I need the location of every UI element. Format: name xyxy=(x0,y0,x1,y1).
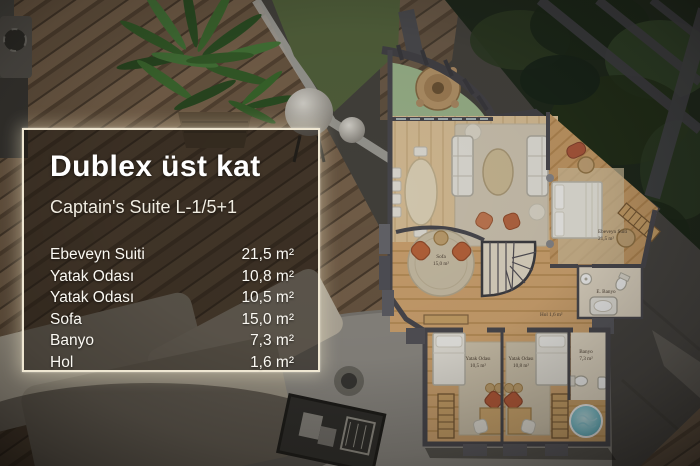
panel-title: Dublex üst kat xyxy=(50,150,294,184)
room-area: 21,5 m² xyxy=(241,244,294,266)
room-label: Yatak Odası xyxy=(50,266,134,288)
room-area: 1,6 m² xyxy=(250,352,294,374)
room-area: 10,8 m² xyxy=(241,266,294,288)
room-row: Yatak Odası 10,8 m² xyxy=(50,266,294,288)
room-area: 7,3 m² xyxy=(250,330,294,352)
real-estate-visual: Ebeveyn Suiti 21,5 m² Sofa 15,0 m² Hol 1… xyxy=(0,0,700,466)
room-area: 10,5 m² xyxy=(241,287,294,309)
room-row: Yatak Odası 10,5 m² xyxy=(50,287,294,309)
room-label: Hol xyxy=(50,352,73,374)
panel-subtitle: Captain's Suite L-1/5+1 xyxy=(50,197,294,218)
room-label: Yatak Odası xyxy=(50,287,134,309)
room-list: Ebeveyn Suiti 21,5 m² Yatak Odası 10,8 m… xyxy=(50,244,294,373)
room-row: Sofa 15,0 m² xyxy=(50,309,294,331)
room-row: Ebeveyn Suiti 21,5 m² xyxy=(50,244,294,266)
room-row: Banyo 7,3 m² xyxy=(50,330,294,352)
room-label: Ebeveyn Suiti xyxy=(50,244,145,266)
info-panel: Dublex üst kat Captain's Suite L-1/5+1 E… xyxy=(22,128,320,372)
room-label: Banyo xyxy=(50,330,94,352)
room-area: 15,0 m² xyxy=(241,309,294,331)
room-label: Sofa xyxy=(50,309,82,331)
room-row: Hol 1,6 m² xyxy=(50,352,294,374)
